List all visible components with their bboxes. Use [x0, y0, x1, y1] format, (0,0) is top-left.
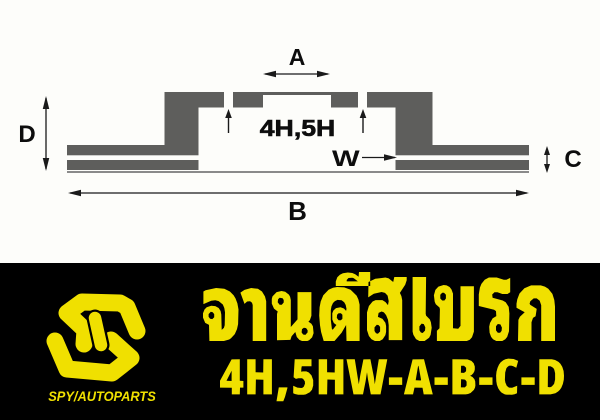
- svg-text:D: D: [18, 121, 35, 148]
- svg-text:SPY/AUTOPARTS: SPY/AUTOPARTS: [48, 389, 156, 404]
- svg-text:C: C: [564, 146, 581, 173]
- svg-text:4H,5H: 4H,5H: [260, 116, 336, 142]
- svg-text:B: B: [288, 196, 307, 226]
- svg-text:A: A: [289, 44, 306, 70]
- svg-text:W: W: [332, 147, 360, 171]
